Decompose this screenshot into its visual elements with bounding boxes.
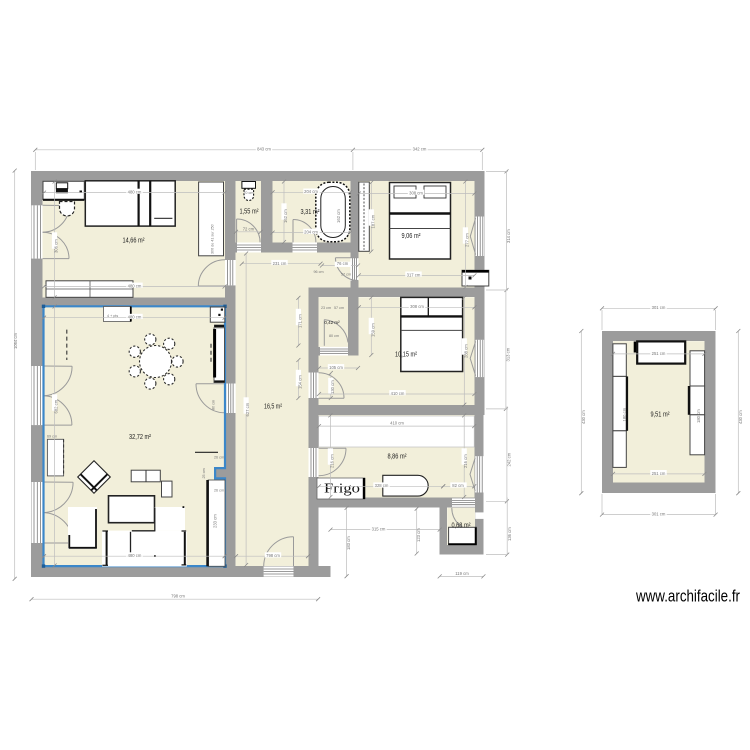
svg-text:242 cm: 242 cm [507,452,512,466]
svg-text:308 cm: 308 cm [409,190,423,195]
svg-text:430 cm: 430 cm [581,410,586,424]
svg-text:0,68 m²: 0,68 m² [452,521,471,530]
svg-text:843 cm: 843 cm [257,146,271,151]
svg-text:26 cm: 26 cm [214,456,224,460]
svg-text:301 cm: 301 cm [652,305,666,310]
svg-text:251 cm: 251 cm [652,351,666,356]
svg-text:216 cm: 216 cm [329,454,334,468]
svg-text:798 cm: 798 cm [266,553,280,558]
svg-text:154 cm: 154 cm [297,375,302,389]
svg-text:32,72 m²: 32,72 m² [129,432,151,441]
svg-text:130 cm: 130 cm [330,380,335,394]
svg-text:277 cm: 277 cm [464,233,469,247]
svg-text:57 cm: 57 cm [334,306,344,310]
svg-text:69 cm: 69 cm [47,435,57,439]
svg-text:328 cm: 328 cm [375,483,389,488]
svg-text:105 cm: 105 cm [329,365,343,370]
svg-text:23 cm: 23 cm [321,306,331,310]
svg-text:57 cm: 57 cm [341,273,351,277]
svg-text:480 cm: 480 cm [128,283,142,288]
svg-text:251 cm: 251 cm [652,471,666,476]
svg-text:288 cm: 288 cm [463,344,468,358]
svg-text:72 cm: 72 cm [243,227,255,232]
svg-text:16,5 m²: 16,5 m² [264,402,282,411]
svg-text:www.archifacile.fr: www.archifacile.fr [635,587,740,606]
svg-text:314 cm: 314 cm [506,229,511,243]
svg-text:9,06 m²: 9,06 m² [402,231,421,240]
svg-text:26 cm: 26 cm [214,489,224,493]
svg-text:25 cm: 25 cm [202,468,206,478]
svg-text:180 cm: 180 cm [622,407,627,421]
svg-text:76 cm: 76 cm [337,261,349,266]
svg-text:306 de 41 sur 250: 306 de 41 sur 250 [211,224,215,254]
svg-text:0,42 m²: 0,42 m² [324,320,340,325]
svg-text:204 cm: 204 cm [304,189,318,194]
svg-text:480 cm: 480 cm [128,315,142,320]
svg-text:317 cm: 317 cm [407,272,421,277]
svg-text:171 cm: 171 cm [297,314,302,328]
svg-text:342 cm: 342 cm [413,146,427,151]
svg-text:410 cm: 410 cm [390,421,404,426]
svg-text:119 cm: 119 cm [455,571,469,576]
svg-text:627 cm: 627 cm [245,402,250,416]
svg-text:430 cm: 430 cm [738,410,743,424]
svg-text:3,31 m²: 3,31 m² [301,207,320,216]
svg-text:183 cm: 183 cm [346,536,351,550]
svg-text:315 cm: 315 cm [372,526,386,531]
svg-text:10,15 m²: 10,15 m² [395,350,417,359]
svg-text:136 cm: 136 cm [507,527,512,541]
svg-text:306 cm: 306 cm [54,239,59,253]
svg-text:308 cm: 308 cm [410,304,424,309]
svg-text:162 cm: 162 cm [283,209,288,223]
svg-text:80 cm: 80 cm [212,400,216,410]
svg-text:82 cm: 82 cm [452,483,464,488]
svg-text:216 cm: 216 cm [463,454,468,468]
svg-text:480 cm: 480 cm [128,189,142,194]
svg-text:Frigo: Frigo [324,480,360,495]
svg-text:410 cm: 410 cm [391,391,405,396]
svg-text:798 cm: 798 cm [171,594,185,599]
svg-text:1,55 m²: 1,55 m² [240,207,259,216]
svg-text:180 cm: 180 cm [696,409,701,423]
svg-text:1064 cm: 1064 cm [13,332,18,349]
svg-text:480 cm: 480 cm [128,553,142,558]
svg-text:14,66 m²: 14,66 m² [123,236,145,245]
svg-text:187 cm: 187 cm [370,214,375,228]
svg-text:233 cm: 233 cm [213,514,218,528]
svg-text:682 cm: 682 cm [54,399,59,413]
svg-text:8,86 m²: 8,86 m² [388,452,407,461]
svg-text:123 cm: 123 cm [416,528,421,542]
svg-text:204 cm: 204 cm [304,230,318,235]
svg-text:159 cm: 159 cm [370,323,375,337]
svg-text:96 cm: 96 cm [314,270,324,274]
svg-text:9,51 m²: 9,51 m² [651,410,670,419]
svg-text:80 cm: 80 cm [329,334,339,338]
svg-text:70 cm: 70 cm [243,191,253,195]
svg-text:231 cm: 231 cm [273,261,287,266]
svg-text:313 cm: 313 cm [506,347,511,361]
svg-text:162 cm: 162 cm [336,209,341,223]
svg-text:301 cm: 301 cm [652,512,666,517]
